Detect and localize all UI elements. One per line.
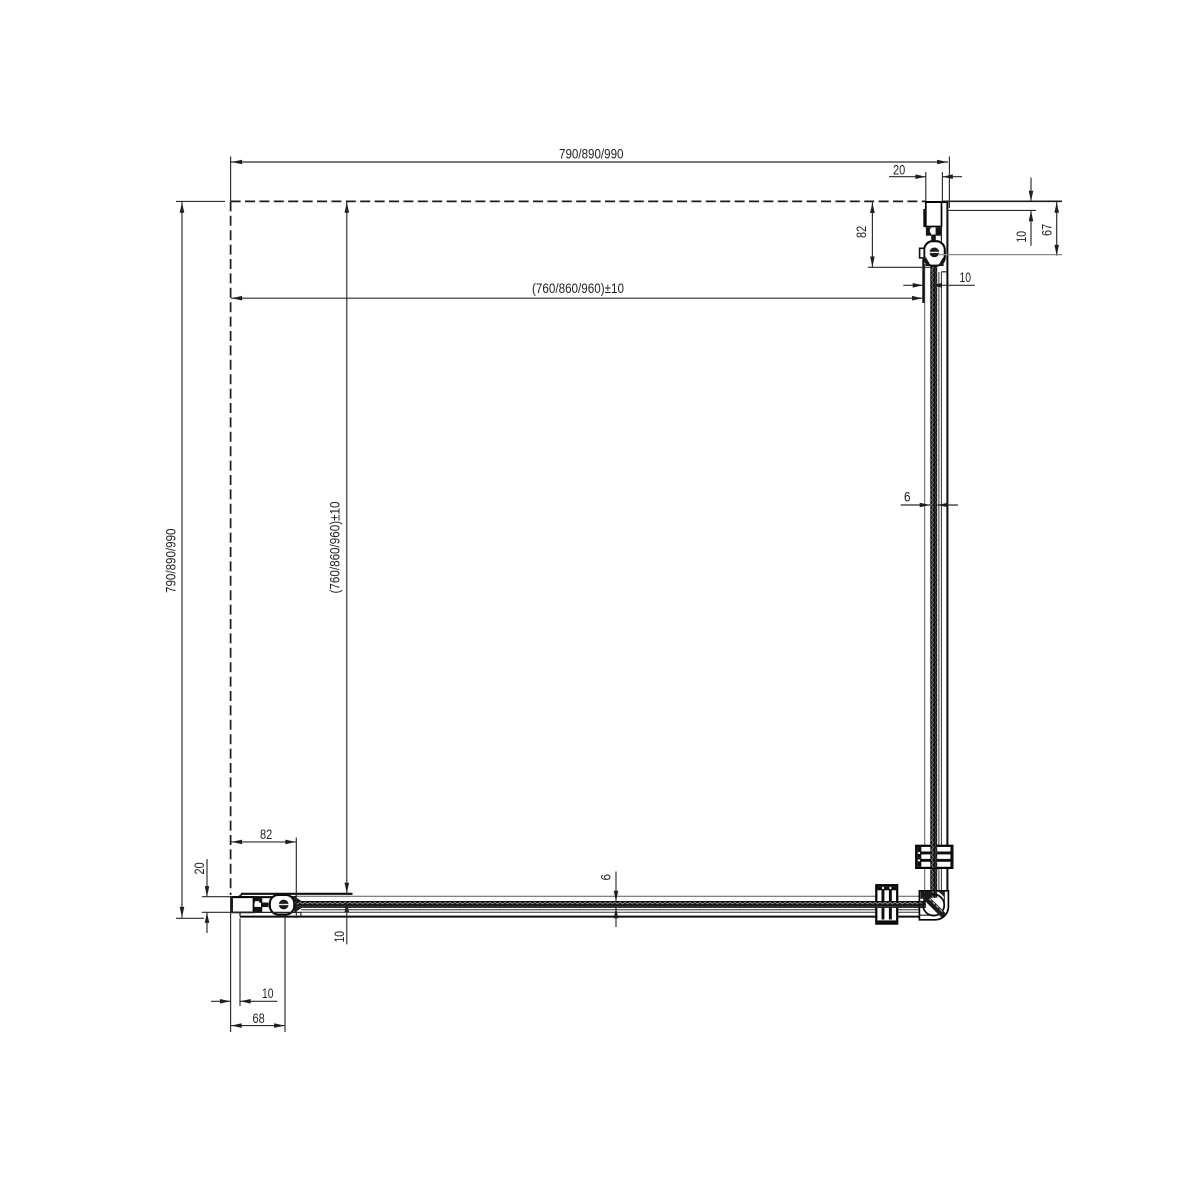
svg-text:82: 82 <box>260 827 272 842</box>
svg-text:68: 68 <box>253 1011 265 1026</box>
svg-text:790/890/990: 790/890/990 <box>559 147 624 162</box>
svg-text:(760/860/960)±10: (760/860/960)±10 <box>532 281 624 296</box>
svg-text:(760/860/960)±10: (760/860/960)±10 <box>328 502 343 594</box>
svg-text:10: 10 <box>332 931 347 943</box>
svg-text:10: 10 <box>262 986 274 1001</box>
svg-text:20: 20 <box>893 163 905 178</box>
svg-text:790/890/990: 790/890/990 <box>164 529 179 594</box>
svg-text:6: 6 <box>599 874 614 881</box>
svg-text:82: 82 <box>854 226 869 238</box>
svg-text:10: 10 <box>960 270 972 285</box>
svg-text:6: 6 <box>904 490 911 505</box>
svg-text:20: 20 <box>192 862 207 874</box>
svg-text:67: 67 <box>1040 224 1055 236</box>
svg-text:10: 10 <box>1014 231 1029 243</box>
